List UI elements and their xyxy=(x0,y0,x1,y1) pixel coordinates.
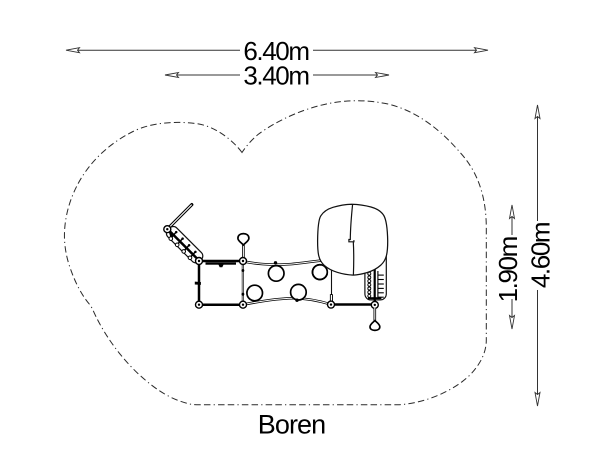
svg-text:Boren: Boren xyxy=(258,409,326,439)
svg-text:4.60m: 4.60m xyxy=(525,223,555,288)
svg-text:3.40m: 3.40m xyxy=(243,61,308,91)
svg-text:1.90m: 1.90m xyxy=(493,237,523,302)
